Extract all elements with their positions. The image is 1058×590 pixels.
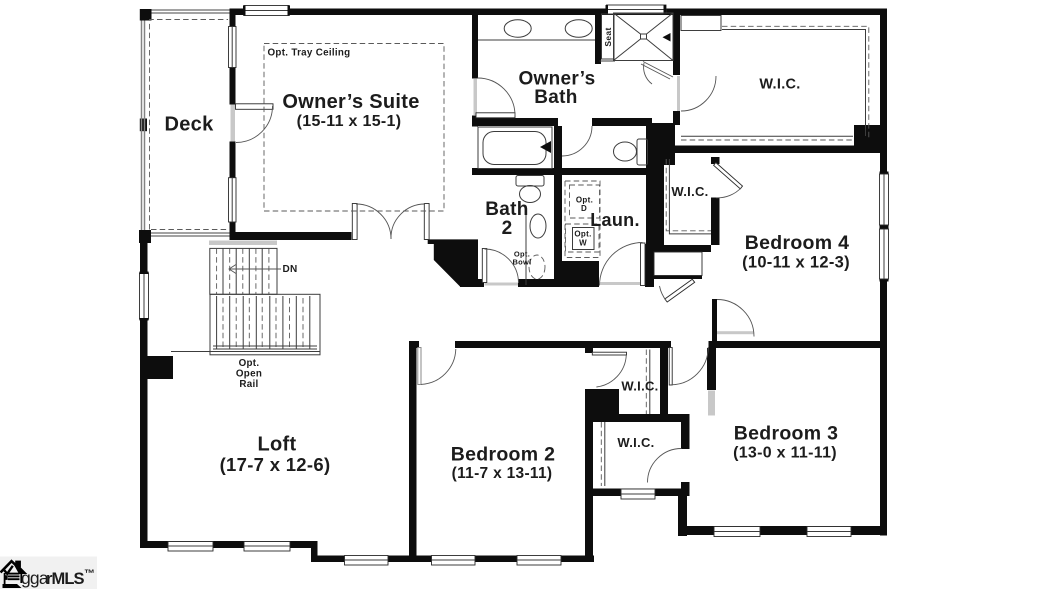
- svg-text:D: D: [581, 204, 587, 213]
- svg-text:Bowl: Bowl: [512, 258, 531, 267]
- svg-text:rMLS: rMLS: [46, 570, 85, 588]
- svg-text:(10-11 x 12-3): (10-11 x 12-3): [742, 254, 850, 272]
- svg-text:(17-7 x 12-6): (17-7 x 12-6): [220, 454, 331, 475]
- svg-text:Laun.: Laun.: [590, 210, 640, 230]
- svg-text:W.I.C.: W.I.C.: [621, 379, 658, 394]
- svg-text:Bedroom 3: Bedroom 3: [734, 423, 839, 445]
- svg-text:Bath: Bath: [534, 87, 577, 108]
- svg-text:Owner’s Suite: Owner’s Suite: [282, 91, 419, 113]
- svg-text:Open: Open: [236, 369, 262, 380]
- svg-text:W.I.C.: W.I.C.: [671, 184, 708, 199]
- svg-text:Rail: Rail: [239, 379, 258, 390]
- svg-text:(15-11 x 15-1): (15-11 x 15-1): [297, 113, 402, 130]
- svg-text:W.I.C.: W.I.C.: [617, 435, 654, 450]
- svg-text:Bedroom 4: Bedroom 4: [745, 232, 850, 254]
- svg-text:W: W: [579, 239, 587, 248]
- svg-text:(13-0 x 11-11): (13-0 x 11-11): [733, 445, 837, 462]
- svg-text:W.I.C.: W.I.C.: [759, 77, 800, 93]
- svg-text:Bedroom 2: Bedroom 2: [451, 444, 556, 466]
- svg-text:2: 2: [502, 218, 513, 239]
- svg-text:Seat: Seat: [603, 27, 613, 46]
- svg-text:Opt. Tray Ceiling: Opt. Tray Ceiling: [268, 48, 351, 59]
- svg-text:Deck: Deck: [164, 114, 214, 136]
- svg-text:DN: DN: [282, 264, 297, 275]
- svg-text:gga: gga: [21, 568, 49, 588]
- svg-text:Bath: Bath: [485, 199, 528, 220]
- svg-text:Opt.: Opt.: [574, 230, 591, 239]
- svg-text:Opt.: Opt.: [239, 358, 260, 369]
- svg-text:(11-7 x 13-11): (11-7 x 13-11): [452, 465, 553, 482]
- svg-text:Loft: Loft: [258, 434, 297, 456]
- svg-text:™: ™: [84, 568, 95, 580]
